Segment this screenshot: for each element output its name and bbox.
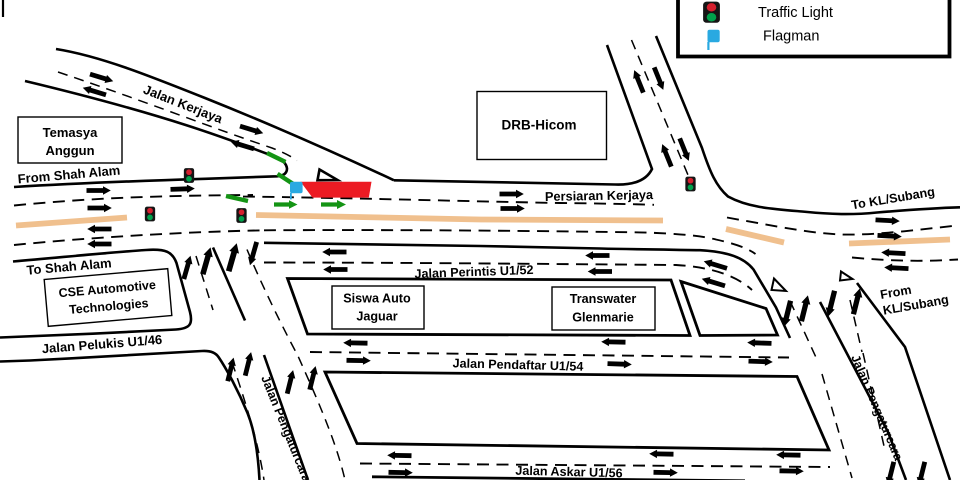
- svg-text:Traffic Light: Traffic Light: [758, 5, 833, 21]
- svg-text:Temasya: Temasya: [43, 125, 98, 140]
- svg-text:DRB-Hicom: DRB-Hicom: [501, 118, 576, 133]
- svg-text:Jaguar: Jaguar: [356, 310, 397, 324]
- svg-text:Glenmarie: Glenmarie: [572, 311, 634, 325]
- svg-text:Transwater: Transwater: [570, 292, 637, 306]
- svg-text:Jalan Askar U1/56: Jalan Askar U1/56: [515, 464, 623, 480]
- svg-text:Flagman: Flagman: [763, 29, 819, 45]
- svg-text:Anggun: Anggun: [45, 143, 94, 158]
- svg-text:Persiaran Kerjaya: Persiaran Kerjaya: [545, 187, 654, 204]
- svg-text:Siswa Auto: Siswa Auto: [343, 292, 411, 306]
